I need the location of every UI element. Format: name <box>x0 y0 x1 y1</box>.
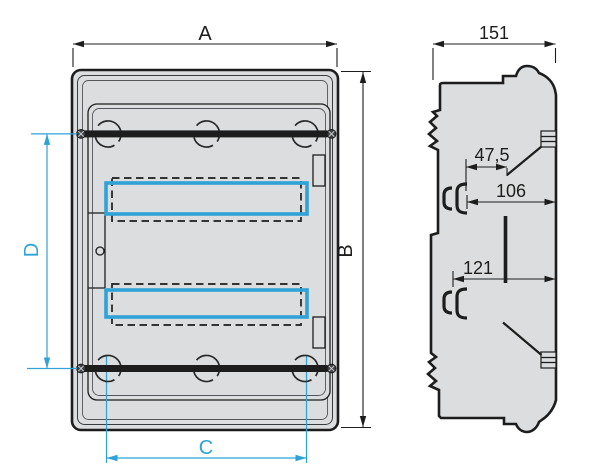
dim-151-label: 151 <box>479 23 509 43</box>
rail-block <box>541 131 556 147</box>
din-rail-top <box>84 130 328 137</box>
dim-475-label: 47,5 <box>474 145 509 165</box>
side-view: 151 47,5 106 121 <box>428 23 556 432</box>
dim-a-label: A <box>198 23 212 45</box>
dim-106-label: 106 <box>496 181 526 201</box>
dim-c-label: C <box>199 437 213 459</box>
technical-drawing: A B D C <box>0 0 600 475</box>
dimension-d: D <box>21 134 77 369</box>
rail-block <box>541 352 556 368</box>
dimension-a: A <box>73 23 337 67</box>
dimension-c: C <box>107 437 307 459</box>
dimension-drawing-svg: A B D C <box>0 0 600 475</box>
dim-121-label: 121 <box>463 258 493 278</box>
dim-d-label: D <box>21 243 43 257</box>
side-profile <box>428 66 556 432</box>
din-rail-bottom <box>84 365 328 372</box>
front-view: A B D C <box>21 23 371 463</box>
dim-b-label: B <box>335 244 357 257</box>
dimension-b: B <box>335 72 371 428</box>
